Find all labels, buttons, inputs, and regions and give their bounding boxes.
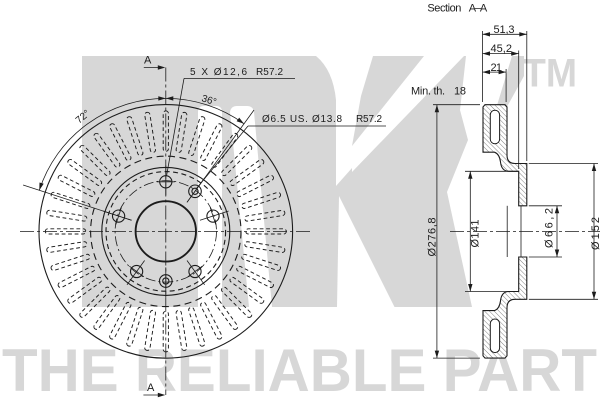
- svg-text:th.: th.: [434, 86, 446, 98]
- svg-text:A: A: [147, 382, 155, 394]
- svg-text:Ø276,8: Ø276,8: [427, 218, 439, 257]
- svg-text:Ø66,2: Ø66,2: [544, 208, 556, 248]
- svg-text:21: 21: [491, 62, 503, 74]
- svg-text:TM: TM: [523, 52, 577, 96]
- svg-text:A: A: [144, 55, 152, 67]
- svg-text:Ø152: Ø152: [590, 217, 600, 250]
- svg-text:R57.2: R57.2: [356, 114, 382, 125]
- svg-text:18: 18: [454, 86, 466, 98]
- svg-text:Ø6.5 US. Ø13.8: Ø6.5 US. Ø13.8: [262, 114, 342, 125]
- svg-text:Ø141: Ø141: [470, 220, 482, 248]
- svg-text:A–A: A–A: [469, 3, 488, 15]
- svg-text:45,2: 45,2: [491, 43, 513, 55]
- svg-text:Section: Section: [427, 3, 461, 15]
- svg-text:5 X Ø12,6: 5 X Ø12,6: [190, 67, 247, 78]
- svg-text:Min.: Min.: [411, 86, 431, 98]
- svg-text:R57.2: R57.2: [256, 67, 283, 78]
- svg-text:51,3: 51,3: [494, 24, 515, 36]
- svg-text:THE RELIABLE PART: THE RELIABLE PART: [2, 336, 597, 400]
